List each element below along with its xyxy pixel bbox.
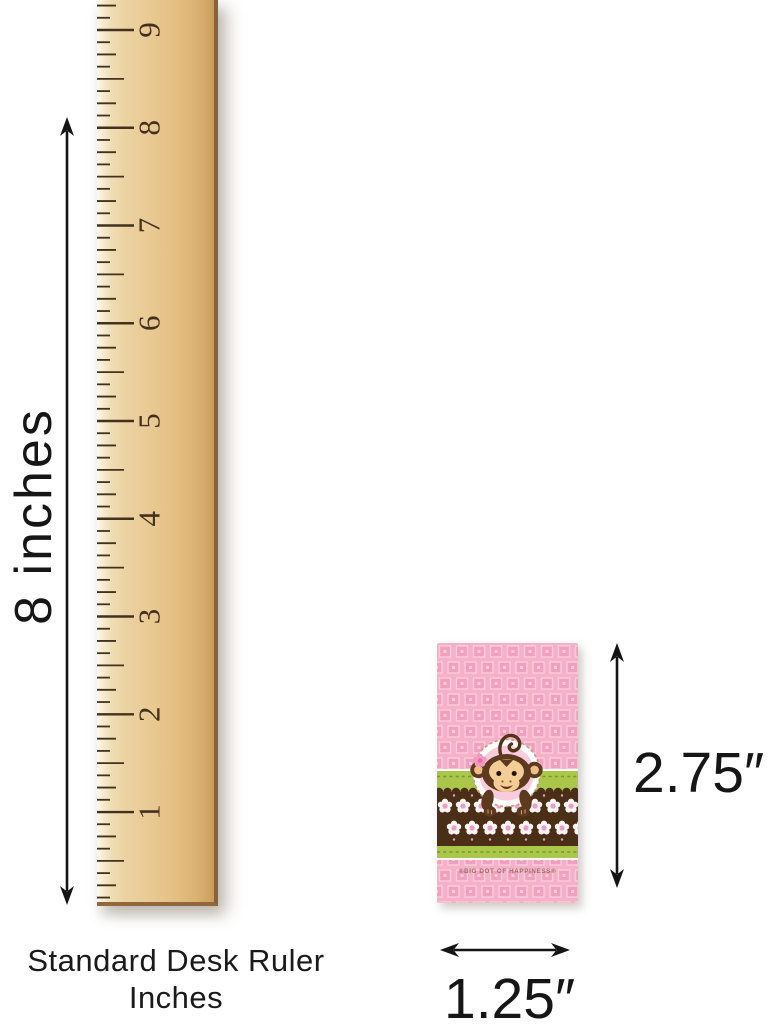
- product-image: ®BIG DOT OF HAPPINESS®: [437, 643, 578, 903]
- ruler-ticks-and-numbers: 987654321: [97, 0, 214, 902]
- ruler-number: 1: [132, 804, 167, 820]
- ruler-number: 6: [132, 316, 167, 332]
- ruler-number: 9: [132, 22, 167, 38]
- product-height-label: 2.75″: [633, 740, 764, 806]
- ruler-number: 2: [132, 707, 167, 723]
- caption-line1: Standard Desk Ruler: [0, 942, 372, 979]
- product-artwork: ®BIG DOT OF HAPPINESS®: [437, 643, 578, 903]
- ruler-number: 4: [132, 511, 167, 527]
- caption-line2: Inches: [0, 979, 372, 1016]
- ruler-number: 3: [132, 609, 167, 625]
- caption: Standard Desk Ruler Inches: [0, 942, 372, 1016]
- page-root: { "page": { "background": "#ffffff" }, "…: [0, 0, 770, 1024]
- brand-text: ®BIG DOT OF HAPPINESS®: [459, 867, 556, 875]
- ruler-height-label: 8 inches: [4, 407, 64, 625]
- product-width-arrow: [440, 943, 570, 957]
- product-width-label: 1.25″: [444, 966, 575, 1032]
- ruler-number: 7: [132, 218, 167, 234]
- product-height-arrow: [610, 643, 624, 888]
- wooden-ruler: 987654321: [97, 0, 218, 906]
- ruler-number: 5: [132, 413, 167, 429]
- ruler-number: 8: [132, 120, 167, 136]
